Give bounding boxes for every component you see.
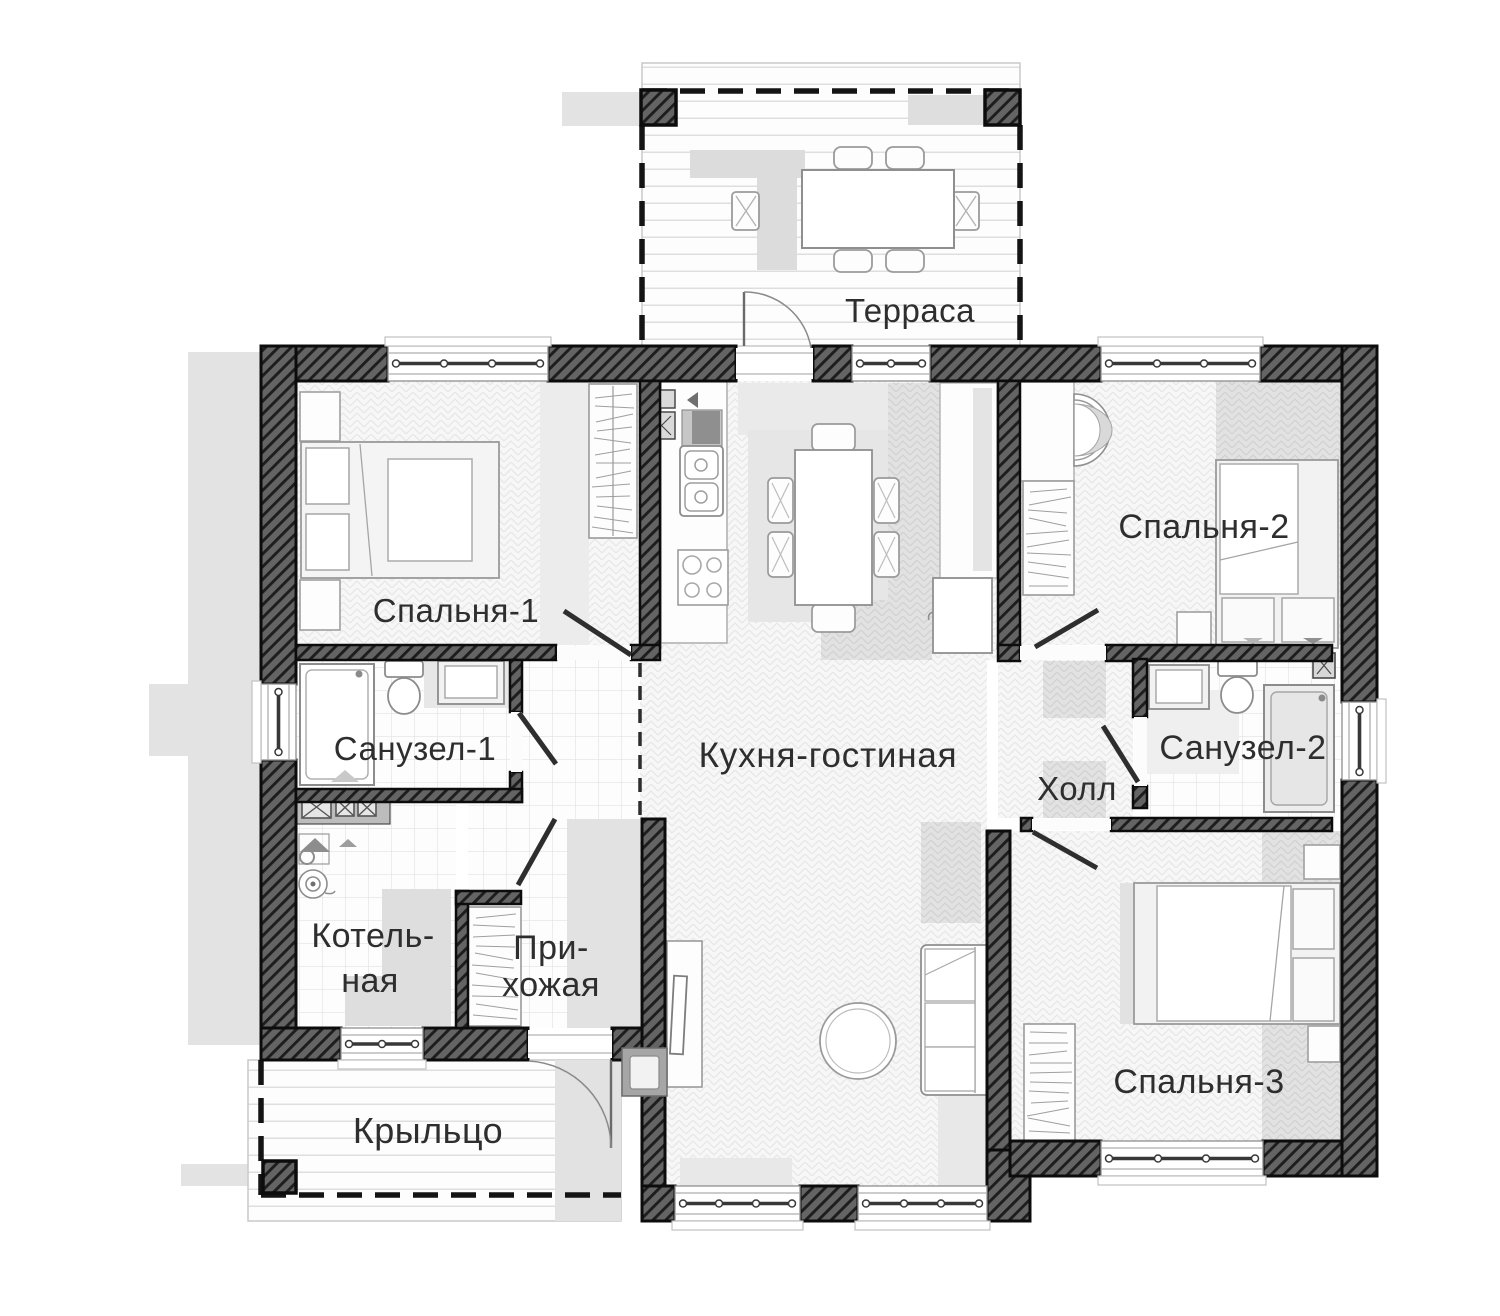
svg-text:Спальня-3: Спальня-3 — [1113, 1063, 1284, 1101]
svg-text:Санузел-1: Санузел-1 — [334, 730, 496, 767]
svg-text:Холл: Холл — [1037, 770, 1117, 807]
svg-text:ная: ная — [341, 962, 399, 1000]
svg-text:Крыльцо: Крыльцо — [353, 1110, 503, 1151]
svg-text:При-: При- — [513, 929, 589, 967]
svg-text:Спальня-2: Спальня-2 — [1118, 508, 1289, 546]
svg-text:Терраса: Терраса — [845, 292, 975, 329]
svg-text:Кухня-гостиная: Кухня-гостиная — [699, 736, 958, 775]
svg-text:Спальня-1: Спальня-1 — [373, 592, 539, 629]
svg-text:Санузел-2: Санузел-2 — [1159, 729, 1326, 767]
svg-text:Котель-: Котель- — [311, 917, 434, 955]
svg-text:хожая: хожая — [502, 966, 600, 1004]
